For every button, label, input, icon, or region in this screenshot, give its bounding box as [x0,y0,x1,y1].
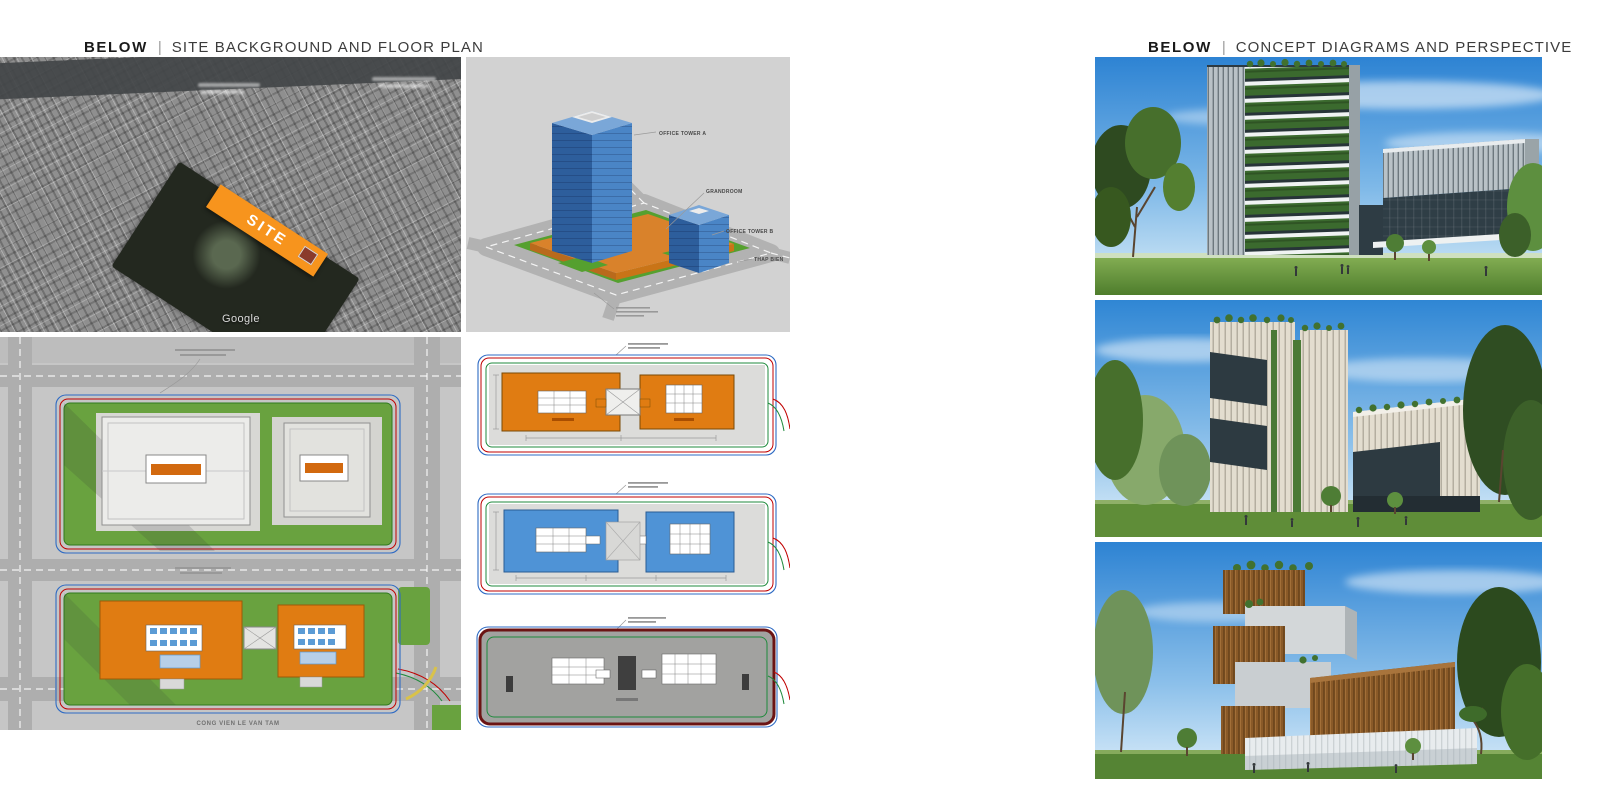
google-watermark: Google [222,313,260,325]
perspective-render-bottom [1095,542,1542,779]
left-heading-keyword: BELOW [84,39,148,56]
perspective-render-top [1095,57,1542,295]
grandroom-label: GRANDROOM [706,189,743,195]
left-heading-title: SITE BACKGROUND AND FLOOR PLAN [172,39,484,56]
main-tower [1207,59,1360,255]
street-label-smudge [372,77,436,81]
floor-plan-tower [466,480,790,612]
plan2-annotation [616,482,668,494]
park-label: CONG VIEN LE VAN TAM [196,721,279,727]
plan2-link [606,522,640,560]
lawn [1095,255,1542,295]
tower-b-label: OFFICE TOWER B [726,229,774,235]
left-heading: BELOW | SITE BACKGROUND AND FLOOR PLAN [84,39,484,56]
podium-base [1353,496,1480,512]
street-label-smudge [200,90,244,94]
perspective-render-middle [1095,300,1542,537]
office-tower-b [669,205,729,273]
plan1-building-b [640,375,734,429]
tower-a-label: OFFICE TOWER A [659,131,706,137]
left-heading-separator: | [158,39,162,56]
plan3-annotation [616,617,666,630]
right-heading: BELOW | CONCEPT DIAGRAMS AND PERSPECTIVE [1148,39,1572,56]
street-label-smudge [198,83,260,87]
portfolio-board: BELOW | SITE BACKGROUND AND FLOOR PLAN B… [0,0,1600,800]
plan2-building-b [632,512,734,572]
plan2-building-a [504,510,618,572]
park-area [111,162,359,332]
floor-plan-basement [466,614,790,740]
side-note-label: THAP BIEN [754,257,784,263]
street-label-smudge [378,84,428,88]
tower-2 [1293,322,1348,512]
right-heading-title: CONCEPT DIAGRAMS AND PERSPECTIVE [1236,39,1573,56]
right-heading-separator: | [1222,39,1226,56]
axonometric-diagram: OFFICE TOWER A GRANDROOM OFFICE TOWER B … [466,57,790,332]
midrise-block [1353,397,1480,512]
parcel-south [56,567,400,713]
office-tower-a [552,111,632,263]
master-site-plan: CONG VIEN LE VAN TAM [0,337,461,730]
right-heading-keyword: BELOW [1148,39,1212,56]
tower-1 [1210,314,1295,512]
floor-plan-podium [466,341,790,473]
aerial-site-map: SITE Google [0,57,461,332]
plan1-annotation [616,343,668,355]
